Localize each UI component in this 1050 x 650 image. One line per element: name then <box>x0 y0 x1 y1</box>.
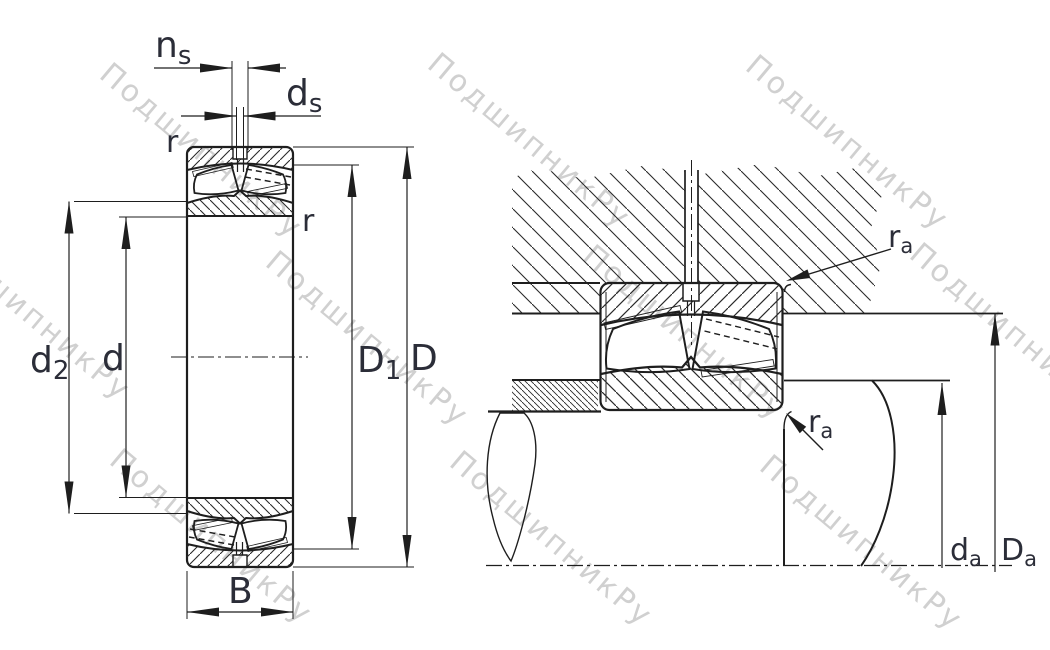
arrowhead <box>403 535 412 567</box>
extension-lines-ns <box>232 61 248 150</box>
watermark-layer: ПодшипникРу ПодшипникРу ПодшипникРу Подш… <box>0 46 1050 638</box>
label-ra-bottom: ra <box>808 405 833 443</box>
arrowhead <box>187 608 219 617</box>
fillet-ra-bottom: ra <box>786 405 833 450</box>
watermark-text: ПодшипникРу <box>753 448 970 638</box>
technical-drawing-page: ПодшипникРу ПодшипникРу ПодшипникРу Подш… <box>0 0 1050 650</box>
arrowhead <box>248 64 280 73</box>
watermark-text: ПодшипникРу <box>103 442 320 632</box>
label-d: d <box>102 338 125 379</box>
arrowhead <box>122 217 131 249</box>
shaft-shoulder-left-hatch <box>512 380 598 411</box>
label-r-top: r <box>166 125 179 160</box>
label-ra-top: ra <box>888 220 913 258</box>
watermark-text: ПодшипникРу <box>443 444 660 634</box>
right-view-mounted-bearing: ra ra da Da <box>486 160 1037 572</box>
arrowhead <box>200 64 232 73</box>
shaft-fillet-relief <box>784 412 792 430</box>
label-D: D <box>410 338 438 379</box>
arrowhead <box>65 482 74 514</box>
arrowhead <box>65 202 74 234</box>
arrowhead <box>348 165 357 197</box>
label-B: B <box>228 571 253 612</box>
arrowhead <box>403 147 412 179</box>
arrowhead <box>348 517 357 549</box>
bearing-drawing: ПодшипникРу ПодшипникРу ПодшипникРу Подш… <box>0 0 1050 650</box>
inner-ring-hatch <box>601 357 782 410</box>
label-da: da <box>950 533 982 571</box>
left-view-bearing-cross-section: ns ds r r d2 d <box>30 25 438 619</box>
label-r-right: r <box>302 204 315 239</box>
arrowhead <box>938 383 947 415</box>
label-Da: Da <box>1001 533 1037 571</box>
label-ds: ds <box>286 73 322 119</box>
extension-lines-ds <box>237 107 244 160</box>
label-ns: ns <box>155 25 191 71</box>
watermark-text: ПодшипникРу <box>903 236 1050 426</box>
dimension-da: da <box>938 383 982 571</box>
